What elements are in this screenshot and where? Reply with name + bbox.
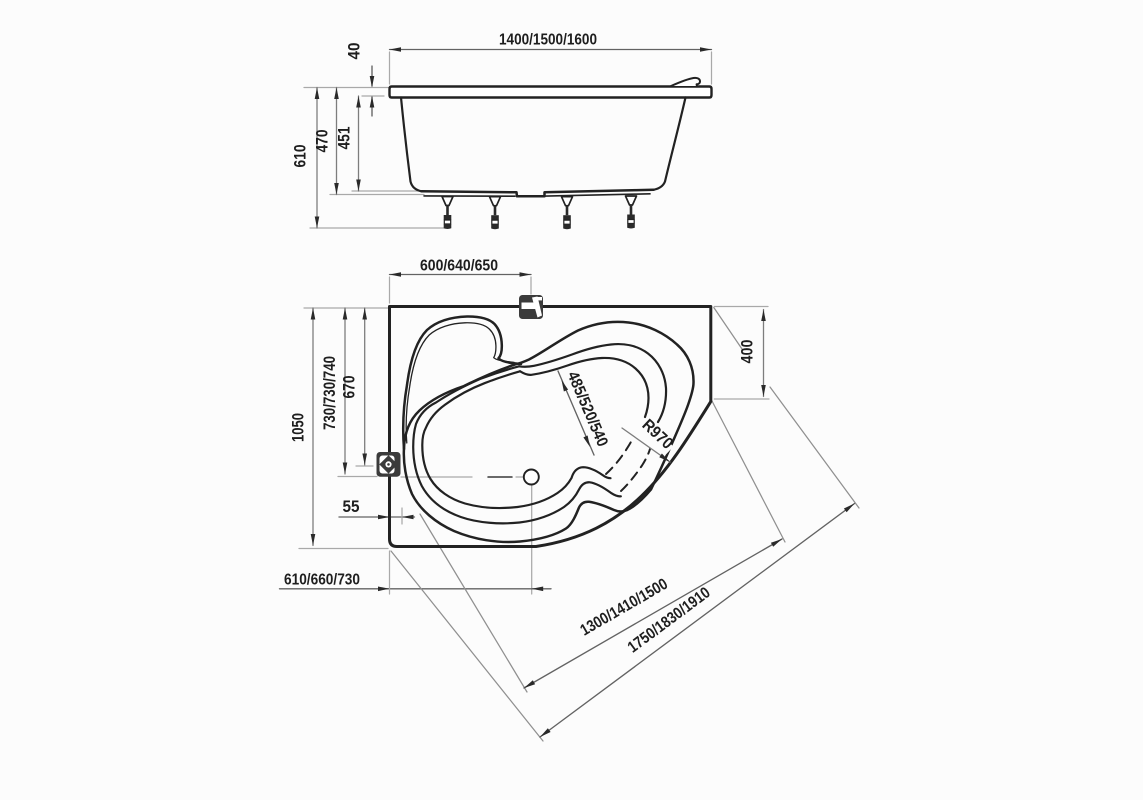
svg-text:400: 400: [738, 340, 757, 364]
svg-text:1050: 1050: [289, 413, 308, 442]
svg-text:730/730/740: 730/730/740: [320, 356, 339, 430]
svg-text:1400/1500/1600: 1400/1500/1600: [499, 32, 597, 49]
svg-text:610: 610: [291, 145, 310, 168]
svg-text:55: 55: [343, 497, 360, 516]
svg-text:451: 451: [335, 127, 354, 150]
svg-text:470: 470: [313, 130, 332, 153]
svg-text:600/640/650: 600/640/650: [420, 258, 498, 275]
svg-text:40: 40: [345, 43, 364, 60]
svg-text:670: 670: [340, 376, 359, 399]
svg-text:610/660/730: 610/660/730: [284, 572, 360, 589]
